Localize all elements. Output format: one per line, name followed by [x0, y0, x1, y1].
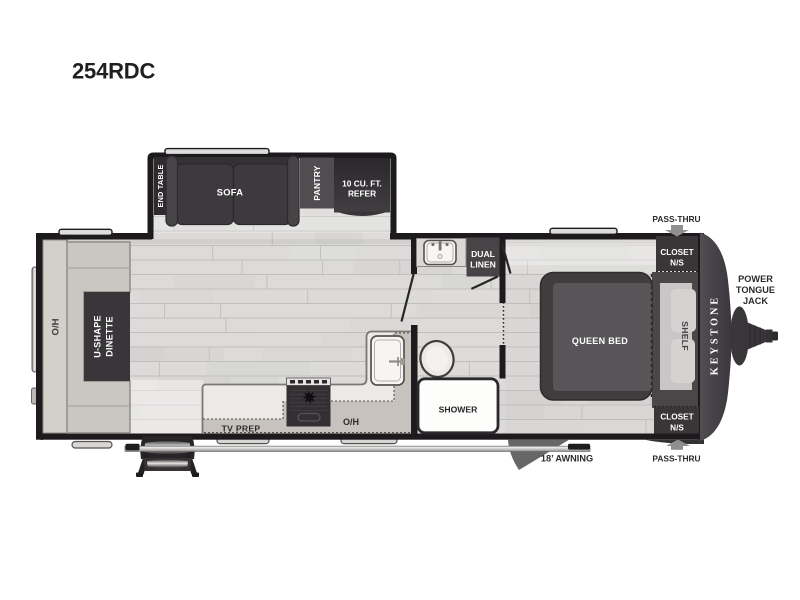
svg-text:O/H: O/H — [343, 417, 359, 427]
svg-text:QUEEN BED: QUEEN BED — [572, 336, 628, 346]
svg-text:DUAL: DUAL — [471, 249, 495, 259]
svg-text:TV PREP: TV PREP — [222, 424, 261, 434]
svg-text:KEYSTONE: KEYSTONE — [710, 295, 721, 375]
svg-text:JACK: JACK — [743, 296, 768, 306]
svg-text:PANTRY: PANTRY — [312, 165, 322, 200]
svg-text:SOFA: SOFA — [217, 188, 244, 198]
svg-text:N/S: N/S — [670, 424, 684, 433]
svg-text:SHELF: SHELF — [680, 321, 690, 351]
svg-text:N/S: N/S — [670, 259, 684, 268]
svg-text:CLOSET: CLOSET — [660, 248, 693, 257]
svg-text:POWER: POWER — [738, 274, 773, 284]
svg-text:U-SHAPE: U-SHAPE — [93, 315, 103, 358]
svg-text:O/H: O/H — [51, 318, 62, 335]
svg-text:DINETTE: DINETTE — [105, 316, 115, 357]
svg-text:PASS-THRU: PASS-THRU — [652, 454, 700, 464]
svg-text:END TABLE: END TABLE — [156, 164, 165, 207]
svg-text:LINEN: LINEN — [470, 260, 496, 270]
svg-text:CLOSET: CLOSET — [660, 413, 693, 422]
svg-text:TONGUE: TONGUE — [736, 285, 775, 295]
svg-text:10 CU. FT.: 10 CU. FT. — [342, 179, 382, 189]
svg-text:254RDC: 254RDC — [72, 59, 155, 84]
svg-text:18’ AWNING: 18’ AWNING — [541, 454, 593, 464]
svg-text:PASS-THRU: PASS-THRU — [652, 214, 700, 224]
svg-text:SHOWER: SHOWER — [439, 405, 478, 415]
svg-text:REFER: REFER — [348, 189, 376, 199]
